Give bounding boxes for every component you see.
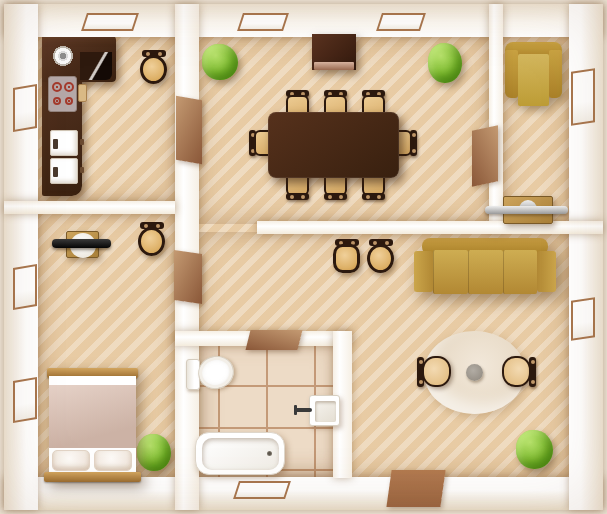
door-entry [386, 470, 445, 507]
toilet [184, 355, 236, 395]
study-armchair [505, 42, 562, 106]
window-kitchen-top [81, 13, 139, 31]
living-stool-round [367, 239, 395, 275]
sofa-arm-right [537, 251, 556, 292]
door-bathroom [246, 330, 303, 350]
stool-seat [140, 55, 167, 84]
burner-4 [65, 97, 73, 105]
double-bed [44, 367, 141, 482]
sofa-cushion-3 [503, 250, 537, 294]
wall-left [4, 4, 38, 510]
bathtub-drain [267, 451, 272, 456]
sofa-cushion-1 [433, 250, 468, 294]
dishwasher-handle [53, 167, 58, 177]
bathtub [195, 432, 285, 475]
window-bathroom-bottom [233, 481, 291, 499]
coffee-table [466, 364, 483, 381]
burner-2 [64, 82, 74, 92]
dining-plant-left [202, 44, 238, 80]
kitchen-corner-cabinet [80, 52, 112, 80]
basin-bowl [315, 401, 336, 422]
sofa-cushion-2 [468, 250, 503, 294]
armchair-arm-left [505, 50, 518, 98]
bed-pillow-right [94, 450, 132, 471]
stool-seat [333, 244, 360, 273]
kitchen-stool [140, 50, 168, 86]
stool-seat [138, 227, 165, 256]
floor-plan [0, 0, 607, 514]
door-kitchen [176, 96, 202, 165]
toilet-bowl [194, 352, 237, 393]
bed-blanket [49, 385, 136, 448]
window-dining-top-1 [237, 13, 289, 31]
window-study-right [571, 68, 595, 125]
burner-3 [53, 97, 61, 105]
counter-knob-2 [80, 167, 84, 173]
bedroom-plant [137, 434, 171, 471]
counter-knob-1 [80, 139, 84, 145]
stool-seat [367, 244, 394, 273]
window-bedroom-left-2 [13, 377, 37, 423]
sideboard-shelf [314, 62, 354, 70]
window-dining-top-2 [376, 13, 426, 31]
console-metal-shelf [485, 206, 568, 214]
washbasin [309, 395, 340, 426]
stove-cooktop [48, 76, 77, 112]
window-bedroom-left-1 [13, 264, 37, 310]
bed-headboard [44, 472, 141, 482]
basin-faucet [295, 408, 312, 412]
faucet-handle [294, 405, 297, 415]
rug-chair-left [417, 355, 453, 389]
dishwasher-appliance [50, 158, 78, 184]
bed-pillow-left [52, 450, 90, 471]
living-stool-square [333, 239, 361, 275]
oven-handle [53, 139, 58, 149]
door-bedroom [174, 250, 202, 304]
oven-appliance [50, 130, 78, 156]
sofa [414, 238, 556, 294]
cutting-board [78, 84, 87, 102]
burner-1 [52, 82, 62, 92]
dining-plant-right [428, 43, 462, 83]
window-living-right [571, 297, 595, 340]
armchair-seat [518, 54, 549, 106]
wall-kitchen-bedroom-divider [4, 201, 175, 214]
window-kitchen-left [13, 84, 37, 132]
dining-table [268, 112, 399, 178]
armchair-arm-right [549, 50, 562, 98]
kitchen-sink [52, 45, 74, 67]
bedroom-stool [138, 222, 166, 258]
wall-dining-study-divider [489, 4, 503, 233]
sofa-arm-left [414, 251, 433, 292]
tv-screen [52, 239, 111, 248]
door-study [472, 125, 498, 187]
rug-chair-right [500, 355, 536, 389]
sideboard [312, 34, 356, 70]
living-plant [516, 430, 553, 469]
